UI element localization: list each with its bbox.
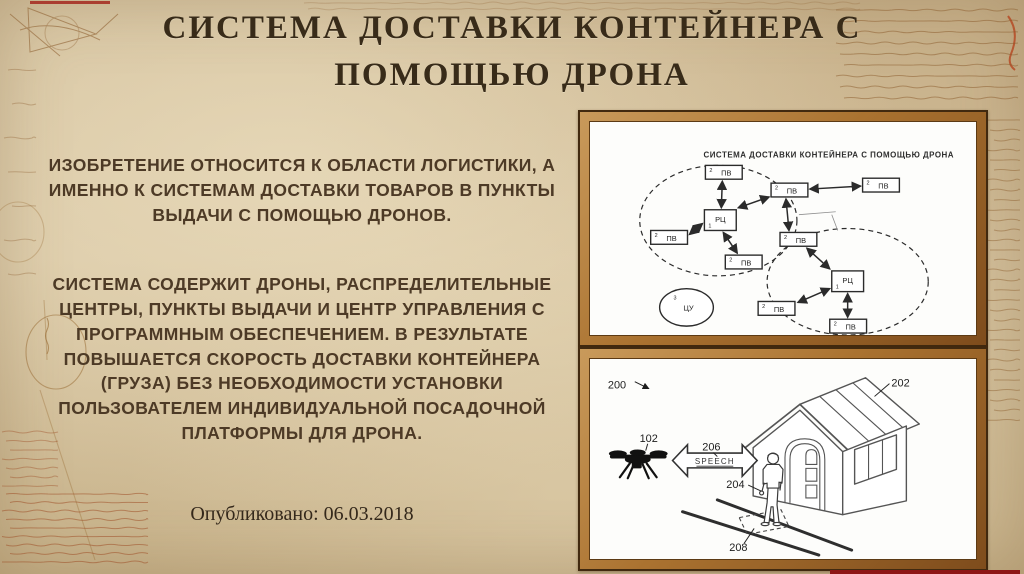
drone-icon [609, 449, 668, 478]
presentation-slide: СИСТЕМА ДОСТАВКИ КОНТЕЙНЕРА С ПОМОЩЬЮ ДР… [0, 0, 1024, 574]
network-arrows [689, 181, 860, 317]
pv-node: ПВ 2 [780, 232, 817, 246]
system-description-paragraph: СИСТЕМА СОДЕРЖИТ ДРОНЫ, РАСПРЕДЕЛИТЕЛЬНЫ… [42, 272, 562, 446]
speech-ref-label: 206 [702, 442, 720, 454]
svg-text:1: 1 [708, 224, 711, 230]
svg-text:2: 2 [729, 258, 732, 264]
platform-ref-label: 208 [729, 542, 747, 554]
svg-text:ПВ: ПВ [845, 323, 855, 332]
figure-ref-pointer [635, 382, 649, 389]
intro-paragraph: ИЗОБРЕТЕНИЕ ОТНОСИТСЯ К ОБЛАСТИ ЛОГИСТИК… [42, 153, 562, 228]
svg-text:2: 2 [709, 168, 712, 174]
svg-text:1: 1 [836, 285, 839, 291]
svg-text:2: 2 [775, 186, 778, 192]
rc-node: РЦ 1 [704, 210, 736, 231]
red-accent-bottom [830, 570, 1020, 574]
svg-text:2: 2 [762, 304, 765, 310]
red-accent-top [30, 1, 110, 4]
svg-text:ПВ: ПВ [774, 305, 784, 314]
svg-text:2: 2 [834, 322, 837, 328]
drone-ref-pointer [646, 444, 648, 451]
house-ref-label: 202 [891, 378, 909, 390]
svg-text:ЦУ: ЦУ [683, 303, 694, 312]
pv-node: ПВ 2 [705, 165, 742, 179]
svg-text:3: 3 [674, 296, 677, 302]
svg-text:ПВ: ПВ [796, 236, 806, 245]
pv-node: ПВ 2 [651, 230, 688, 244]
slide-title: СИСТЕМА ДОСТАВКИ КОНТЕЙНЕРА С ПОМОЩЬЮ ДР… [62, 5, 962, 99]
svg-text:2: 2 [784, 235, 787, 241]
svg-text:РЦ: РЦ [842, 276, 853, 285]
svg-text:ПВ: ПВ [721, 169, 731, 178]
cu-node: ЦУ 3 [660, 289, 714, 326]
network-diagram-title: СИСТЕМА ДОСТАВКИ КОНТЕЙНЕРА С ПОМОЩЬЮ ДР… [704, 151, 955, 160]
person-ref-label: 204 [726, 479, 744, 491]
svg-text:ПВ: ПВ [787, 187, 797, 196]
svg-text:ПВ: ПВ [666, 234, 676, 243]
pv-node: ПВ 2 [863, 178, 900, 192]
rc-node: РЦ 1 [832, 271, 864, 292]
pv-node: ПВ 2 [771, 183, 808, 197]
network-diagram: СИСТЕМА ДОСТАВКИ КОНТЕЙНЕРА С ПОМОЩЬЮ ДР… [590, 122, 976, 335]
pv-node: ПВ 2 [725, 255, 762, 269]
svg-text:РЦ: РЦ [715, 215, 726, 224]
network-diagram-paper: СИСТЕМА ДОСТАВКИ КОНТЕЙНЕРА С ПОМОЩЬЮ ДР… [589, 121, 977, 336]
figure-ref-label: 200 [608, 380, 626, 392]
published-date: Опубликовано: 06.03.2018 [42, 503, 562, 526]
svg-text:2: 2 [655, 233, 658, 239]
speech-label: SPEECH [695, 457, 735, 466]
pv-node: ПВ 2 [758, 301, 795, 315]
red-flourish-top-right [1008, 16, 1015, 70]
patent-figure-paper: 200 202 [589, 358, 977, 560]
svg-text:ПВ: ПВ [878, 182, 888, 191]
svg-text:ПВ: ПВ [741, 259, 751, 268]
patent-figure: 200 202 [590, 359, 976, 559]
pv-node: ПВ 2 [830, 319, 867, 333]
svg-text:2: 2 [867, 181, 870, 187]
network-diagram-panel: СИСТЕМА ДОСТАВКИ КОНТЕЙНЕРА С ПОМОЩЬЮ ДР… [578, 110, 988, 347]
patent-figure-panel: 200 202 [578, 347, 988, 571]
drone-ref-label: 102 [640, 433, 658, 445]
